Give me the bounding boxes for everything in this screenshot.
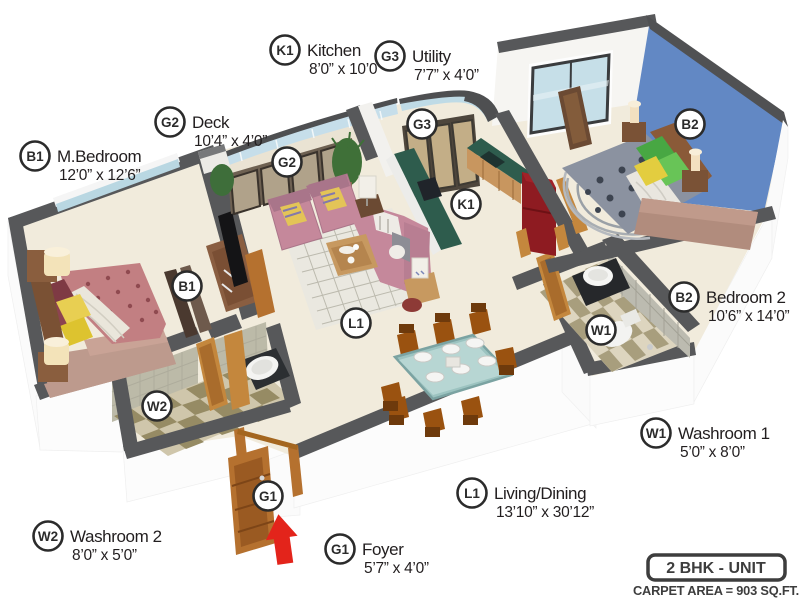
svg-text:W1: W1	[646, 426, 667, 441]
svg-text:2 BHK - UNIT: 2 BHK - UNIT	[666, 560, 766, 577]
svg-text:W1: W1	[591, 323, 612, 338]
svg-text:Washroom 1: Washroom 1	[678, 424, 770, 443]
svg-text:5’7” x 4’0”: 5’7” x 4’0”	[364, 560, 429, 577]
svg-text:Utility: Utility	[412, 47, 452, 66]
svg-text:G3: G3	[381, 49, 400, 64]
svg-text:W2: W2	[147, 399, 167, 414]
svg-text:8’0” x 10’0”: 8’0” x 10’0”	[309, 61, 382, 78]
svg-text:Living/Dining: Living/Dining	[494, 484, 586, 503]
svg-text:K1: K1	[276, 43, 294, 58]
svg-text:Foyer: Foyer	[362, 540, 404, 559]
svg-text:B2: B2	[675, 290, 692, 305]
svg-text:K1: K1	[457, 197, 475, 212]
svg-text:10’4” x 4’0”: 10’4” x 4’0”	[194, 133, 267, 150]
svg-text:B1: B1	[178, 279, 196, 294]
svg-text:Deck: Deck	[192, 113, 230, 132]
svg-text:B2: B2	[681, 117, 698, 132]
svg-text:G2: G2	[161, 115, 179, 130]
svg-text:B1: B1	[26, 149, 44, 164]
svg-text:13’10” x 30’12”: 13’10” x 30’12”	[496, 504, 594, 521]
svg-text:12’0” x 12’6”: 12’0” x 12’6”	[59, 167, 141, 184]
svg-text:L1: L1	[464, 486, 480, 501]
svg-text:G2: G2	[278, 155, 296, 170]
svg-text:CARPET AREA = 903 SQ.FT.: CARPET AREA = 903 SQ.FT.	[633, 583, 799, 598]
svg-text:G1: G1	[259, 489, 278, 504]
svg-text:10’6” x 14’0”: 10’6” x 14’0”	[708, 308, 790, 325]
svg-text:7’7” x 4’0”: 7’7” x 4’0”	[414, 67, 479, 84]
svg-text:Washroom 2: Washroom 2	[70, 527, 162, 546]
svg-text:Kitchen: Kitchen	[307, 41, 361, 60]
svg-text:G3: G3	[413, 117, 432, 132]
svg-text:W2: W2	[38, 529, 58, 544]
svg-text:5’0” x 8’0”: 5’0” x 8’0”	[680, 444, 745, 461]
svg-text:L1: L1	[348, 316, 364, 331]
svg-text:8’0” x 5’0”: 8’0” x 5’0”	[72, 547, 137, 564]
svg-text:Bedroom 2: Bedroom 2	[706, 288, 786, 307]
svg-text:M.Bedroom: M.Bedroom	[57, 147, 142, 166]
svg-text:G1: G1	[331, 542, 350, 557]
